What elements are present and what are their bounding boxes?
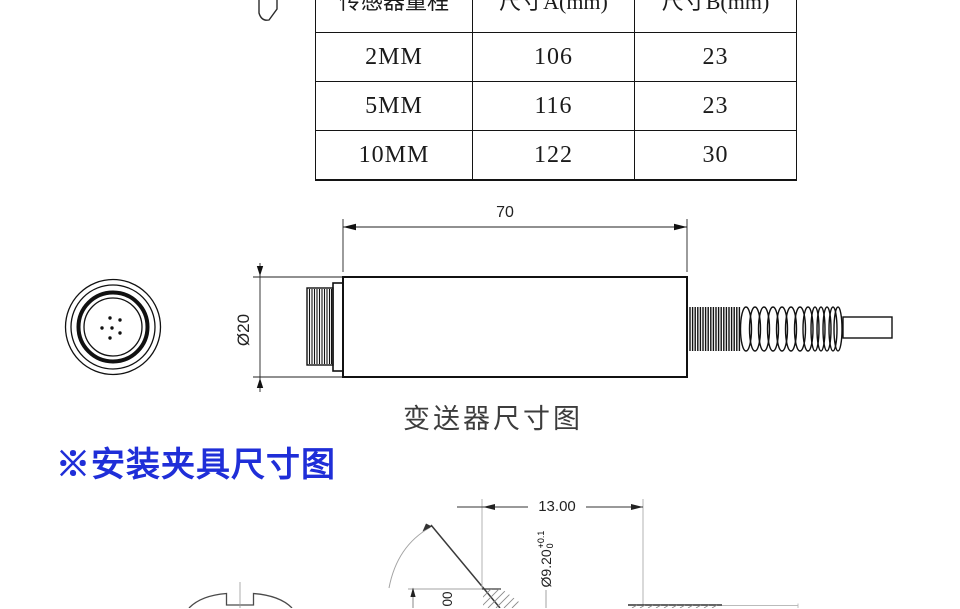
fixture-bore-dimension-label: Ø9.20 +0.1 0 (536, 526, 556, 592)
cell-range: 10MM (316, 131, 473, 180)
table-row: 10MM 122 30 (316, 131, 796, 180)
fixture-partial-dimension-label: 00 (439, 589, 455, 609)
header-cell-dim-b: 尺寸B(mm) (635, 0, 796, 33)
transmitter-side-view (307, 277, 892, 377)
cable-spring (690, 307, 842, 351)
sensor-spec-table: 传感器量程 尺寸A(mm) 尺寸B(mm) 2MM 106 23 5MM 116… (315, 0, 797, 181)
header-cell-dim-a: 尺寸A(mm) (473, 0, 635, 33)
cell-dim-b: 23 (635, 33, 796, 82)
length-dimension-lines (343, 219, 687, 272)
cell-range: 5MM (316, 82, 473, 131)
header-cell-range: 传感器量程 (316, 0, 473, 33)
diameter-dimension-label: Ø20 (234, 308, 254, 352)
cell-dim-a: 116 (473, 82, 635, 131)
cell-dim-a: 122 (473, 131, 635, 180)
table-row: 2MM 106 23 (316, 33, 796, 82)
fixture-width-dimension-label: 13.00 (527, 498, 587, 515)
cell-dim-a: 106 (473, 33, 635, 82)
cell-range: 2MM (316, 33, 473, 82)
fixture-section-heading: ※安装夹具尺寸图 (56, 437, 336, 486)
length-dimension-label: 70 (480, 204, 530, 222)
connector-pins (100, 316, 121, 339)
ribbon-callout-icon (259, 0, 277, 20)
transmitter-front-view (66, 280, 161, 375)
cell-dim-b: 23 (635, 82, 796, 131)
transmitter-caption: 变送器尺寸图 (377, 397, 609, 436)
cable-end (843, 317, 892, 338)
table-row: 5MM 116 23 (316, 82, 796, 131)
cell-dim-b: 30 (635, 131, 796, 180)
table-header-row: 传感器量程 尺寸A(mm) 尺寸B(mm) (316, 0, 796, 33)
fixture-base-section (628, 604, 798, 609)
fixture-ring-top-view (189, 582, 292, 608)
bore-tolerance: +0.1 0 (537, 531, 555, 549)
